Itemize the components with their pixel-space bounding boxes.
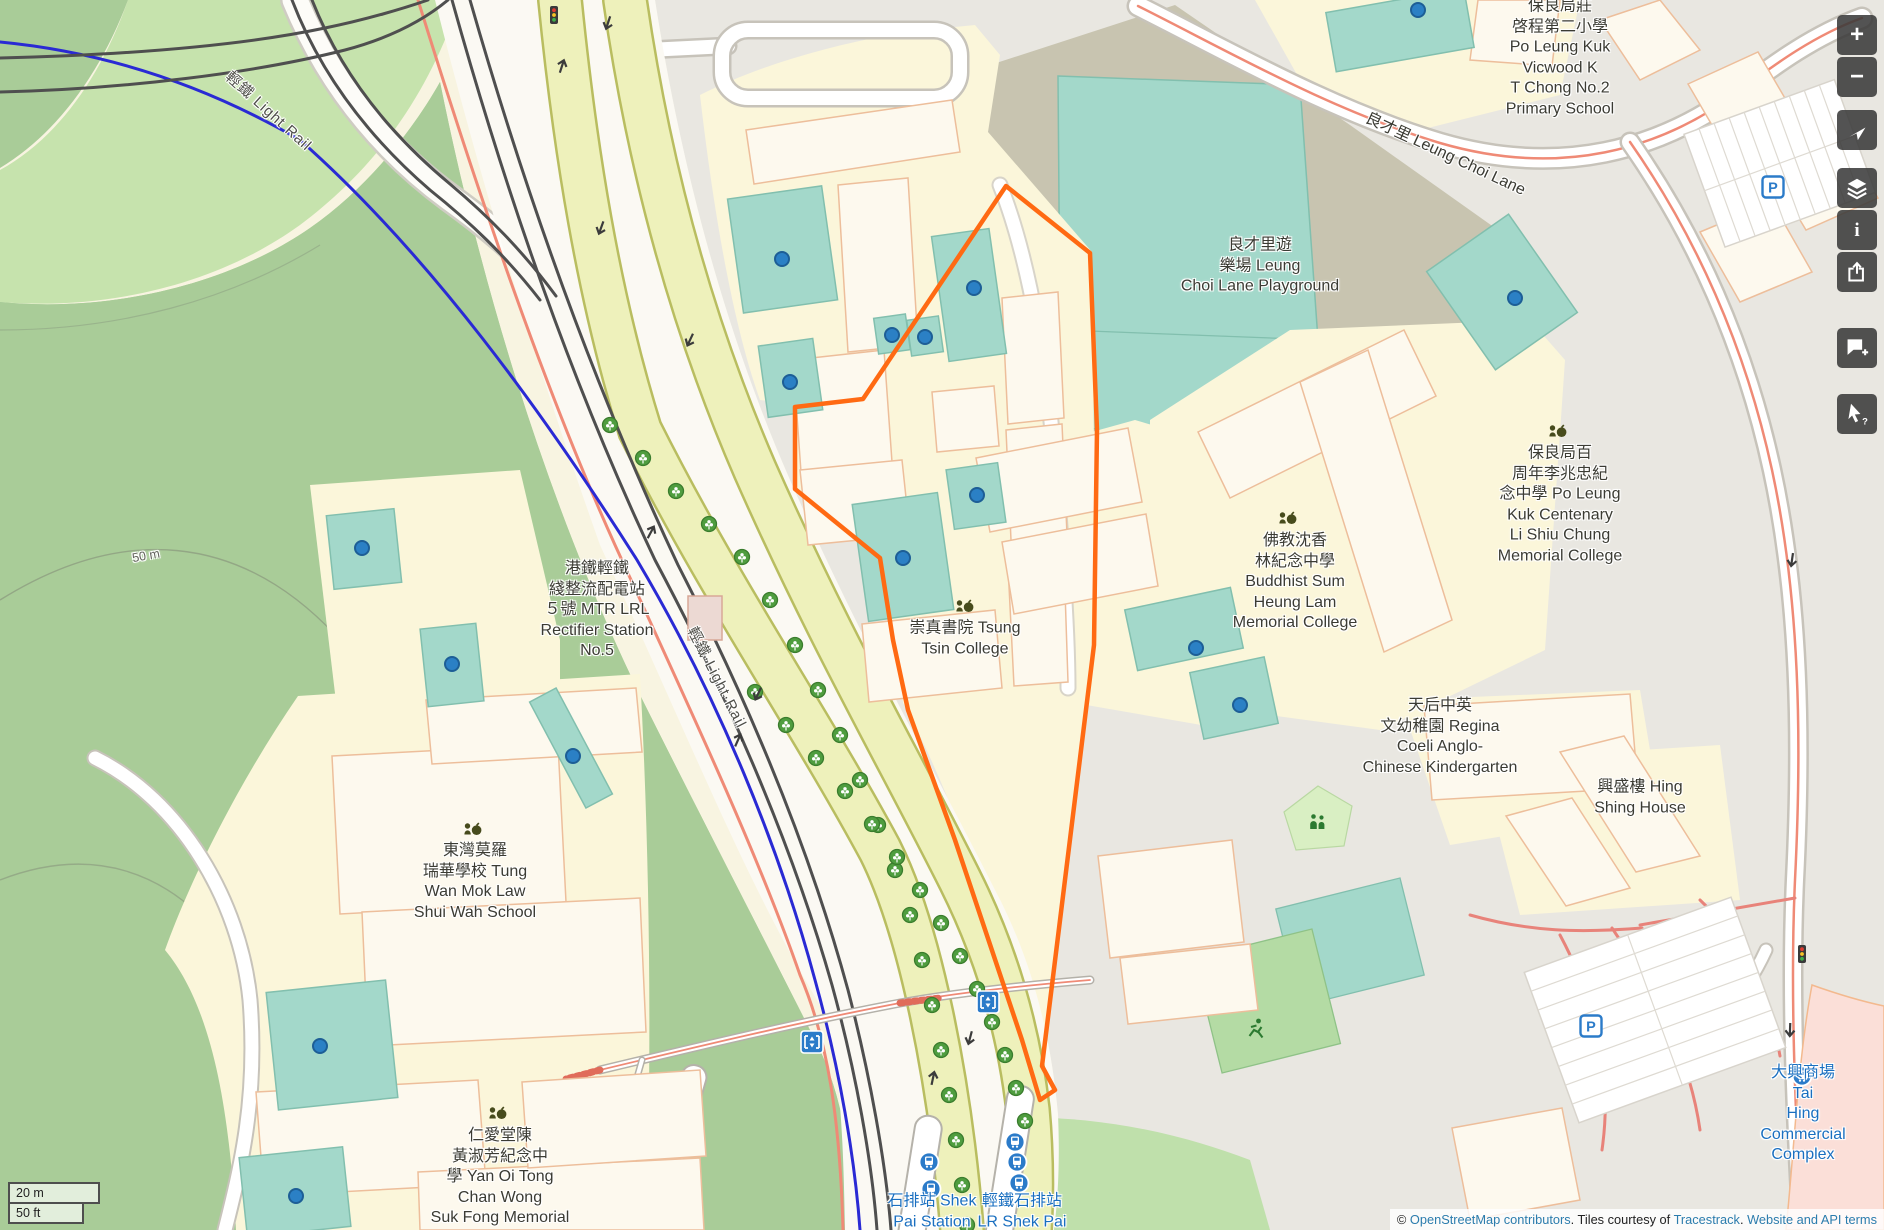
elevator-icon — [977, 991, 999, 1013]
traffic-signal-icon — [550, 6, 558, 24]
tram-stop-icon[interactable] — [1008, 1153, 1027, 1172]
copyright-prefix: © — [1397, 1212, 1410, 1227]
add-note-button[interactable] — [1837, 328, 1877, 368]
tracestrack-link[interactable]: Tracestrack — [1674, 1212, 1740, 1227]
tram-stop-icon[interactable] — [1010, 1174, 1029, 1193]
scale-bar: 20 m 50 ft — [8, 1182, 100, 1224]
terms-link[interactable]: Website and API terms — [1747, 1212, 1877, 1227]
elevator-icon — [801, 1031, 823, 1053]
tram-stop-icon[interactable] — [1006, 1133, 1025, 1152]
info-icon: i — [1854, 221, 1859, 240]
tiles-courtesy-text: . Tiles courtesy of — [1571, 1212, 1674, 1227]
query-features-button[interactable]: ? — [1837, 394, 1877, 434]
query-cursor-icon: ? — [1845, 402, 1869, 426]
separator-text: . — [1740, 1212, 1747, 1227]
zoom-in-button[interactable]: + — [1837, 15, 1877, 55]
parking-icon — [1581, 1016, 1602, 1037]
locate-me-button[interactable] — [1837, 110, 1877, 150]
minus-icon: − — [1850, 65, 1864, 89]
layers-button[interactable] — [1837, 168, 1877, 208]
map-application: P — [0, 0, 1884, 1230]
map-key-button[interactable]: i — [1837, 210, 1877, 250]
scale-bar-imperial: 50 ft — [8, 1202, 84, 1224]
traffic-signal-icon — [1798, 945, 1806, 963]
parking-icon — [1763, 177, 1784, 198]
attribution-bar: © OpenStreetMap contributors. Tiles cour… — [1390, 1209, 1884, 1230]
map-canvas[interactable]: P — [0, 0, 1884, 1230]
share-button[interactable] — [1837, 252, 1877, 292]
tram-stop-icon[interactable] — [922, 1180, 941, 1199]
share-icon — [1846, 261, 1868, 283]
layers-icon — [1845, 176, 1869, 200]
scale-bar-metric: 20 m — [8, 1182, 100, 1204]
note-bubble-icon — [1845, 336, 1869, 360]
svg-text:?: ? — [1862, 415, 1868, 426]
tram-stop-icon[interactable] — [1793, 1067, 1812, 1086]
plus-icon: + — [1850, 23, 1864, 47]
locate-arrow-icon — [1846, 119, 1868, 141]
zoom-out-button[interactable]: − — [1837, 57, 1877, 97]
tram-stop-icon[interactable] — [920, 1153, 939, 1172]
osm-contributors-link[interactable]: OpenStreetMap contributors — [1410, 1212, 1571, 1227]
